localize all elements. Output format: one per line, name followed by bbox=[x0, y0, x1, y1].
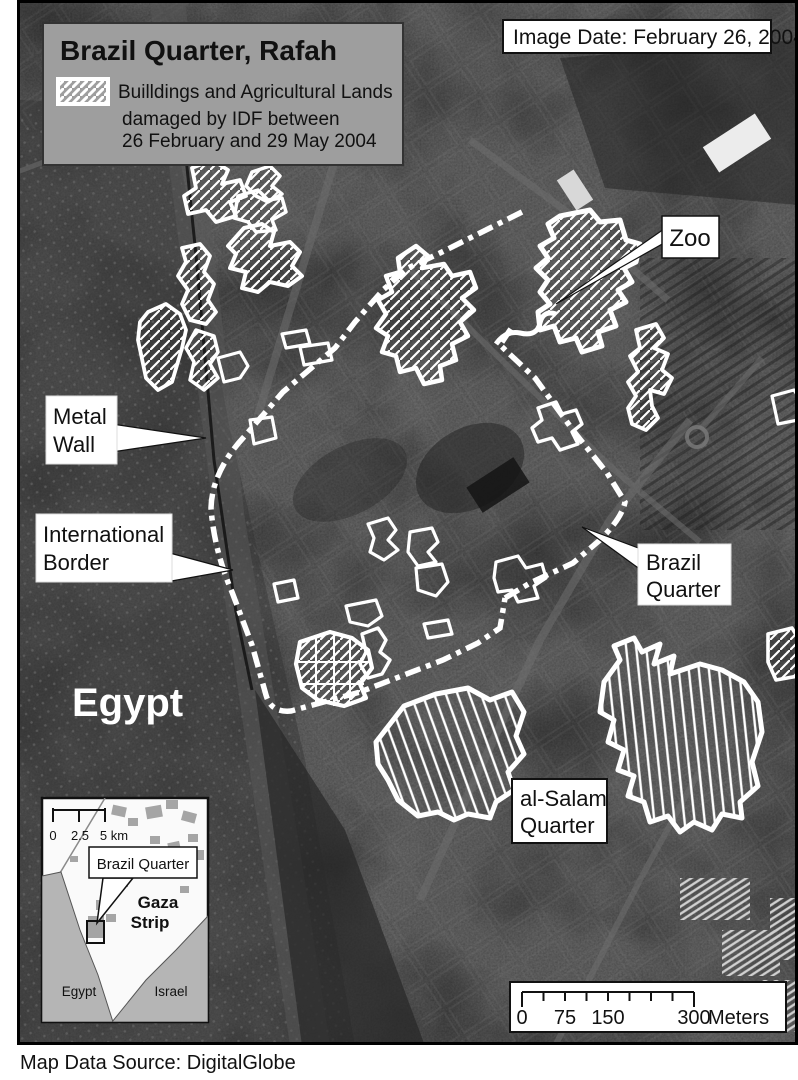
brazil-quarter-label-line2: Quarter bbox=[646, 577, 721, 602]
map-credit: Map Data Source: DigitalGlobe bbox=[20, 1048, 780, 1078]
map-svg: Zoo Metal Wall International Border Braz… bbox=[0, 0, 798, 1046]
scale-tick-300: 300 bbox=[677, 1007, 710, 1029]
egypt-label: Egypt bbox=[72, 681, 183, 725]
map-title: Brazil Quarter, Rafah bbox=[60, 35, 337, 66]
inset-gaza-label-line1: Gaza bbox=[138, 893, 179, 912]
scale-bar: 0 75 150 300 Meters bbox=[510, 982, 786, 1032]
image-date-label: Image Date: February 26, 2004 bbox=[513, 26, 798, 49]
legend-line3: 26 February and 29 May 2004 bbox=[122, 131, 377, 152]
scale-unit: Meters bbox=[708, 1007, 769, 1029]
metal-wall-label-line2: Wall bbox=[53, 432, 95, 457]
inset-israel-label: Israel bbox=[154, 984, 187, 999]
brazil-quarter-label-line1: Brazil bbox=[646, 550, 701, 575]
satellite-map: Zoo Metal Wall International Border Braz… bbox=[0, 0, 798, 1046]
page: Zoo Metal Wall International Border Braz… bbox=[0, 0, 798, 1080]
al-salam-quarter-label-box: al-Salam Quarter bbox=[512, 779, 607, 843]
inset-map: Brazil Quarter Gaza Strip Egypt Israel 0… bbox=[42, 798, 208, 1022]
legend-line1: Builldings and Agricultural Lands bbox=[118, 82, 393, 103]
scale-tick-75: 75 bbox=[554, 1007, 576, 1029]
inset-gaza-label-line2: Strip bbox=[131, 913, 170, 932]
international-border-label-line2: Border bbox=[43, 550, 109, 575]
inset-scale-mid: 2.5 bbox=[71, 828, 89, 843]
scale-tick-0: 0 bbox=[516, 1007, 527, 1029]
title-legend-panel: Brazil Quarter, Rafah Builldings and Agr… bbox=[43, 23, 403, 165]
inset-scale-end: 5 km bbox=[100, 828, 128, 843]
al-salam-label-line1: al-Salam bbox=[520, 786, 607, 811]
legend-line2: damaged by IDF between bbox=[122, 109, 340, 130]
international-border-label-line1: International bbox=[43, 522, 164, 547]
image-date-box: Image Date: February 26, 2004 bbox=[503, 20, 798, 53]
inset-brazil-quarter-label: Brazil Quarter bbox=[97, 856, 190, 873]
inset-egypt-label: Egypt bbox=[62, 984, 97, 999]
scale-tick-150: 150 bbox=[591, 1007, 624, 1029]
inset-scale-0: 0 bbox=[49, 828, 56, 843]
metal-wall-label-line1: Metal bbox=[53, 404, 107, 429]
damage-polygon bbox=[768, 628, 798, 680]
zoo-label: Zoo bbox=[669, 225, 710, 252]
al-salam-label-line2: Quarter bbox=[520, 813, 595, 838]
legend-swatch bbox=[58, 79, 108, 104]
